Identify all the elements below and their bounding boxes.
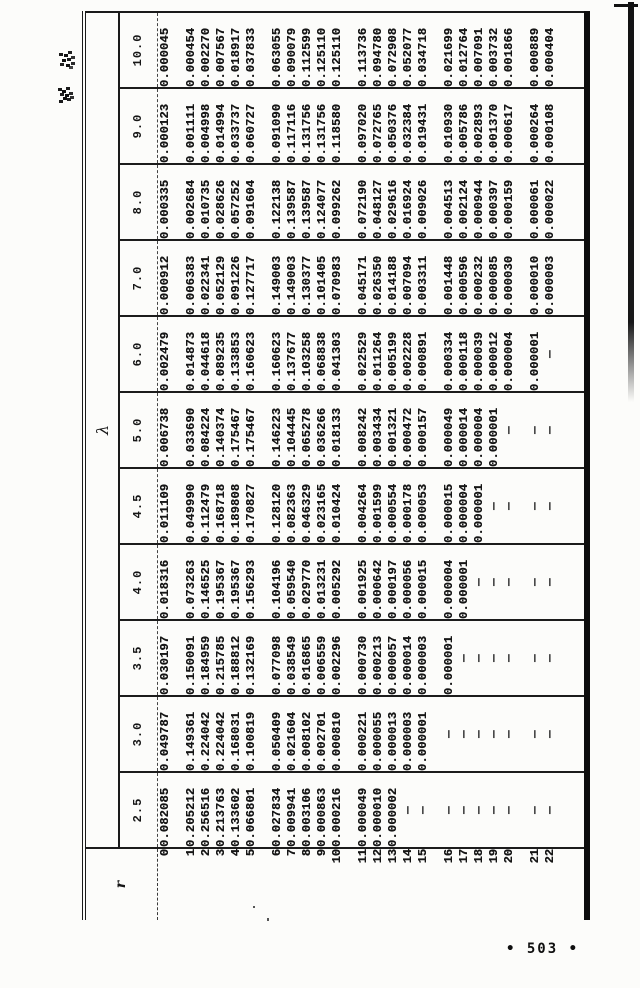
- cell-l2.5-r7: 0.009941: [284, 772, 299, 848]
- poisson-probability-table: rλ2.53.03.54.04.55.06.07.08.09.010.000.0…: [82, 11, 590, 920]
- cell-l3.5-r15: 0.000003: [415, 620, 430, 696]
- cell-l3.0-r10: 0.000810: [329, 696, 344, 772]
- cell-l6.0-r12: 0.011264: [370, 316, 385, 392]
- ink-smudge: [59, 53, 63, 56]
- spacer-cell: [258, 772, 269, 848]
- spacer-cell: [430, 620, 441, 696]
- cell-l10.0-r2: 0.002270: [198, 12, 213, 88]
- spacer-cell: [172, 316, 183, 392]
- cell-l2.5-r19: —: [486, 772, 501, 848]
- cell-l5.0-r5: 0.175467: [243, 392, 258, 468]
- lambda-value-header-3.0: 3.0: [119, 696, 157, 772]
- cell-l3.5-r22: —: [542, 620, 557, 696]
- cell-l9.0-r1: 0.001111: [183, 88, 198, 164]
- r-value-19: 19: [486, 848, 501, 920]
- spacer-cell: [516, 848, 527, 920]
- cell-l9.0-r4: 0.033737: [228, 88, 243, 164]
- cell-l9.0-r14: 0.032384: [400, 88, 415, 164]
- spacer-cell: [344, 392, 355, 468]
- spacer-cell: [557, 240, 587, 316]
- cell-l4.5-r17: 0.000004: [456, 468, 471, 544]
- cell-l7.0-r1: 0.006383: [183, 240, 198, 316]
- cell-l5.0-r20: —: [501, 392, 516, 468]
- spacer-cell: [172, 164, 183, 240]
- cell-l8.0-r2: 0.010735: [198, 164, 213, 240]
- group-spacer: [430, 12, 441, 920]
- r-value-16: 16: [441, 848, 456, 920]
- cell-l2.5-r15: —: [415, 772, 430, 848]
- cell-l2.5-r17: —: [456, 772, 471, 848]
- cell-l5.0-r1: 0.033690: [183, 392, 198, 468]
- table-row-r14: 14—0.0000030.0000140.0000560.0001780.000…: [400, 12, 415, 920]
- cell-l3.0-r6: 0.050409: [269, 696, 284, 772]
- cell-l6.0-r2: 0.044618: [198, 316, 213, 392]
- cell-l4.0-r21: —: [527, 544, 542, 620]
- cell-l4.0-r14: 0.000056: [400, 544, 415, 620]
- cell-l7.0-r21: 0.000010: [527, 240, 542, 316]
- cell-l9.0-r17: 0.005786: [456, 88, 471, 164]
- cell-l2.5-r1: 0.205212: [183, 772, 198, 848]
- cell-l10.0-r5: 0.037833: [243, 12, 258, 88]
- r-value-13: 13: [385, 848, 400, 920]
- spacer-cell: [516, 240, 527, 316]
- cell-l5.0-r10: 0.018133: [329, 392, 344, 468]
- cell-l3.0-r15: 0.000001: [415, 696, 430, 772]
- spacer-cell: [557, 772, 587, 848]
- group-spacer: [557, 12, 587, 920]
- cell-l7.0-r12: 0.026350: [370, 240, 385, 316]
- spacer-cell: [557, 620, 587, 696]
- r-value-2: 2: [198, 848, 213, 920]
- spacer-cell: [557, 544, 587, 620]
- cell-l8.0-r4: 0.057252: [228, 164, 243, 240]
- cell-l9.0-r11: 0.097020: [355, 88, 370, 164]
- r-value-4: 4: [228, 848, 243, 920]
- cell-l2.5-r8: 0.003106: [299, 772, 314, 848]
- cell-l3.0-r4: 0.168031: [228, 696, 243, 772]
- cell-l6.0-r17: 0.000118: [456, 316, 471, 392]
- cell-l5.0-r8: 0.065278: [299, 392, 314, 468]
- cell-l7.0-r19: 0.000085: [486, 240, 501, 316]
- spacer-cell: [430, 848, 441, 920]
- cell-l4.0-r20: —: [501, 544, 516, 620]
- spacer-cell: [430, 240, 441, 316]
- cell-l4.5-r0: 0.011109: [157, 468, 172, 544]
- cell-l4.5-r5: 0.170827: [243, 468, 258, 544]
- spacer-cell: [557, 848, 587, 920]
- spacer-cell: [172, 544, 183, 620]
- cell-l4.5-r18: 0.000001: [471, 468, 486, 544]
- cell-l4.5-r1: 0.049990: [183, 468, 198, 544]
- spacer-cell: [516, 620, 527, 696]
- cell-l7.0-r9: 0.101405: [314, 240, 329, 316]
- lambda-value-header-4.0: 4.0: [119, 544, 157, 620]
- r-value-3: 3: [213, 848, 228, 920]
- cell-l9.0-r22: 0.000108: [542, 88, 557, 164]
- cell-l10.0-r21: 0.000889: [527, 12, 542, 88]
- cell-l10.0-r16: 0.021699: [441, 12, 456, 88]
- cell-l6.0-r9: 0.068838: [314, 316, 329, 392]
- cell-l7.0-r13: 0.014188: [385, 240, 400, 316]
- cell-l4.5-r14: 0.000178: [400, 468, 415, 544]
- cell-l2.5-r18: —: [471, 772, 486, 848]
- spacer-cell: [258, 848, 269, 920]
- cell-l3.5-r16: 0.000001: [441, 620, 456, 696]
- scanned-document-page: rλ2.53.03.54.04.55.06.07.08.09.010.000.0…: [0, 0, 640, 988]
- r-value-10: 10: [329, 848, 344, 920]
- cell-l3.5-r14: 0.000014: [400, 620, 415, 696]
- cell-l8.0-r18: 0.000944: [471, 164, 486, 240]
- cell-l3.5-r1: 0.150091: [183, 620, 198, 696]
- r-value-14: 14: [400, 848, 415, 920]
- cell-l3.5-r4: 0.188812: [228, 620, 243, 696]
- r-value-12: 12: [370, 848, 385, 920]
- cell-l5.0-r18: 0.000004: [471, 392, 486, 468]
- spacer-cell: [557, 316, 587, 392]
- spacer-cell: [258, 164, 269, 240]
- spacer-cell: [557, 88, 587, 164]
- cell-l9.0-r18: 0.002893: [471, 88, 486, 164]
- table-row-r0: 00.0820850.0497870.0301970.0183160.01110…: [157, 12, 172, 920]
- table-row-r10: 100.0002160.0008100.0022960.0052920.0104…: [329, 12, 344, 920]
- r-value-17: 17: [456, 848, 471, 920]
- cell-l8.0-r15: 0.009026: [415, 164, 430, 240]
- cell-l10.0-r14: 0.052077: [400, 12, 415, 88]
- cell-l10.0-r12: 0.094780: [370, 12, 385, 88]
- cell-l5.0-r14: 0.000472: [400, 392, 415, 468]
- spacer-cell: [557, 164, 587, 240]
- cell-l5.0-r6: 0.146223: [269, 392, 284, 468]
- cell-l9.0-r20: 0.000617: [501, 88, 516, 164]
- cell-l8.0-r8: 0.139587: [299, 164, 314, 240]
- rotated-table-area: rλ2.53.03.54.04.55.06.07.08.09.010.000.0…: [82, 12, 585, 920]
- cell-l3.5-r6: 0.077098: [269, 620, 284, 696]
- cell-l9.0-r9: 0.131756: [314, 88, 329, 164]
- cell-l5.0-r9: 0.036266: [314, 392, 329, 468]
- cell-l7.0-r17: 0.000596: [456, 240, 471, 316]
- cell-l10.0-r20: 0.001866: [501, 12, 516, 88]
- cell-l2.5-r20: —: [501, 772, 516, 848]
- cell-l5.0-r21: —: [527, 392, 542, 468]
- r-value-20: 20: [501, 848, 516, 920]
- cell-l8.0-r0: 0.000335: [157, 164, 172, 240]
- spacer-cell: [258, 620, 269, 696]
- cell-l8.0-r12: 0.048127: [370, 164, 385, 240]
- cell-l7.0-r5: 0.127717: [243, 240, 258, 316]
- cell-l2.5-r11: 0.000049: [355, 772, 370, 848]
- cell-l9.0-r5: 0.060727: [243, 88, 258, 164]
- cell-l7.0-r6: 0.149003: [269, 240, 284, 316]
- cell-l7.0-r4: 0.091226: [228, 240, 243, 316]
- r-value-15: 15: [415, 848, 430, 920]
- cell-l6.0-r14: 0.002228: [400, 316, 415, 392]
- cell-l8.0-r21: 0.000061: [527, 164, 542, 240]
- cell-l4.5-r7: 0.082363: [284, 468, 299, 544]
- cell-l8.0-r1: 0.002684: [183, 164, 198, 240]
- cell-l10.0-r4: 0.018917: [228, 12, 243, 88]
- cell-l10.0-r11: 0.113736: [355, 12, 370, 88]
- cell-l3.5-r18: —: [471, 620, 486, 696]
- spacer-cell: [172, 88, 183, 164]
- cell-l3.0-r16: —: [441, 696, 456, 772]
- cell-l3.5-r13: 0.000057: [385, 620, 400, 696]
- lambda-value-header-9.0: 9.0: [119, 88, 157, 164]
- cell-l3.0-r11: 0.000221: [355, 696, 370, 772]
- cell-l3.0-r20: —: [501, 696, 516, 772]
- cell-l8.0-r5: 0.091604: [243, 164, 258, 240]
- r-value-11: 11: [355, 848, 370, 920]
- cell-l9.0-r21: 0.000264: [527, 88, 542, 164]
- cell-l9.0-r7: 0.117116: [284, 88, 299, 164]
- cell-l4.0-r8: 0.029770: [299, 544, 314, 620]
- spacer-cell: [172, 772, 183, 848]
- table-row-r20: 20——————0.0000040.0000300.0001590.000617…: [501, 12, 516, 920]
- cell-l4.0-r18: —: [471, 544, 486, 620]
- cell-l3.0-r19: —: [486, 696, 501, 772]
- cell-l6.0-r4: 0.133853: [228, 316, 243, 392]
- spacer-cell: [516, 12, 527, 88]
- cell-l6.0-r10: 0.041303: [329, 316, 344, 392]
- cell-l10.0-r9: 0.125110: [314, 12, 329, 88]
- spacer-cell: [430, 392, 441, 468]
- cell-l5.0-r0: 0.006738: [157, 392, 172, 468]
- cell-l8.0-r9: 0.124077: [314, 164, 329, 240]
- table-row-r13: 130.0000020.0000130.0000570.0001970.0005…: [385, 12, 400, 920]
- cell-l6.0-r11: 0.022529: [355, 316, 370, 392]
- cell-l4.5-r12: 0.001599: [370, 468, 385, 544]
- spacer-cell: [172, 392, 183, 468]
- spacer-cell: [516, 316, 527, 392]
- cell-l5.0-r22: —: [542, 392, 557, 468]
- cell-l2.5-r16: —: [441, 772, 456, 848]
- cell-l8.0-r6: 0.122138: [269, 164, 284, 240]
- spacer-cell: [516, 544, 527, 620]
- cell-l3.5-r11: 0.000730: [355, 620, 370, 696]
- cell-l9.0-r3: 0.014994: [213, 88, 228, 164]
- scan-speckle: [253, 906, 255, 908]
- spacer-cell: [516, 772, 527, 848]
- spacer-cell: [258, 12, 269, 88]
- cell-l3.0-r7: 0.021604: [284, 696, 299, 772]
- spacer-cell: [344, 468, 355, 544]
- cell-l5.0-r17: 0.000014: [456, 392, 471, 468]
- cell-l10.0-r7: 0.090079: [284, 12, 299, 88]
- cell-l7.0-r18: 0.000232: [471, 240, 486, 316]
- spacer-cell: [258, 240, 269, 316]
- table-row-r12: 120.0000100.0000550.0002130.0006420.0015…: [370, 12, 385, 920]
- cell-l3.0-r1: 0.149361: [183, 696, 198, 772]
- spacer-cell: [344, 544, 355, 620]
- cell-l3.0-r21: —: [527, 696, 542, 772]
- cell-l8.0-r11: 0.072190: [355, 164, 370, 240]
- cell-l3.0-r3: 0.224042: [213, 696, 228, 772]
- lambda-value-header-4.5: 4.5: [119, 468, 157, 544]
- cell-l2.5-r22: —: [542, 772, 557, 848]
- cell-l4.0-r10: 0.005292: [329, 544, 344, 620]
- r-value-5: 5: [243, 848, 258, 920]
- spacer-cell: [430, 316, 441, 392]
- r-value-21: 21: [527, 848, 542, 920]
- cell-l5.0-r16: 0.000049: [441, 392, 456, 468]
- table-row-r8: 80.0031060.0081020.0168650.0297700.04632…: [299, 12, 314, 920]
- cell-l8.0-r16: 0.004513: [441, 164, 456, 240]
- cell-l6.0-r5: 0.160623: [243, 316, 258, 392]
- spacer-cell: [516, 392, 527, 468]
- cell-l10.0-r18: 0.007091: [471, 12, 486, 88]
- table-row-r21: 21——————0.0000010.0000100.0000610.000264…: [527, 12, 542, 920]
- cell-l4.0-r19: —: [486, 544, 501, 620]
- cell-l3.0-r9: 0.002701: [314, 696, 329, 772]
- spacer-cell: [172, 696, 183, 772]
- cell-l6.0-r22: —: [542, 316, 557, 392]
- cell-l4.5-r13: 0.000554: [385, 468, 400, 544]
- cell-l5.0-r15: 0.000157: [415, 392, 430, 468]
- cell-l3.0-r5: 0.100819: [243, 696, 258, 772]
- r-value-1: 1: [183, 848, 198, 920]
- cell-l6.0-r6: 0.160623: [269, 316, 284, 392]
- cell-l4.0-r3: 0.195367: [213, 544, 228, 620]
- cell-l4.0-r15: 0.000015: [415, 544, 430, 620]
- group-spacer: [344, 12, 355, 920]
- cell-l7.0-r14: 0.007094: [400, 240, 415, 316]
- cell-l6.0-r3: 0.089235: [213, 316, 228, 392]
- spacer-cell: [430, 12, 441, 88]
- table-row-r1: 10.2052120.1493610.1500910.0732630.04999…: [183, 12, 198, 920]
- cell-l4.0-r5: 0.156293: [243, 544, 258, 620]
- table-row-r22: 22———————0.0000030.0000220.0001080.00040…: [542, 12, 557, 920]
- cell-l6.0-r1: 0.014873: [183, 316, 198, 392]
- r-value-9: 9: [314, 848, 329, 920]
- r-value-8: 8: [299, 848, 314, 920]
- cell-l3.0-r8: 0.008102: [299, 696, 314, 772]
- cell-l3.5-r10: 0.002296: [329, 620, 344, 696]
- table-row-r18: 18————0.0000010.0000040.0000390.0002320.…: [471, 12, 486, 920]
- cell-l6.0-r7: 0.137677: [284, 316, 299, 392]
- cell-l4.0-r6: 0.104196: [269, 544, 284, 620]
- cell-l3.5-r0: 0.030197: [157, 620, 172, 696]
- cell-l2.5-r13: 0.000002: [385, 772, 400, 848]
- table-row-r19: 19—————0.0000010.0000120.0000850.0003970…: [486, 12, 501, 920]
- cell-l5.0-r3: 0.140374: [213, 392, 228, 468]
- table-row-r15: 15—0.0000010.0000030.0000150.0000530.000…: [415, 12, 430, 920]
- spacer-cell: [344, 164, 355, 240]
- cell-l2.5-r6: 0.027834: [269, 772, 284, 848]
- spacer-cell: [344, 88, 355, 164]
- cell-l4.5-r8: 0.046329: [299, 468, 314, 544]
- cell-l2.5-r9: 0.000863: [314, 772, 329, 848]
- spacer-cell: [557, 392, 587, 468]
- cell-l10.0-r1: 0.000454: [183, 12, 198, 88]
- cell-l4.0-r13: 0.000197: [385, 544, 400, 620]
- cell-l2.5-r2: 0.256516: [198, 772, 213, 848]
- cell-l9.0-r2: 0.004998: [198, 88, 213, 164]
- table-row-r2: 20.2565160.2240420.1849590.1465250.11247…: [198, 12, 213, 920]
- cell-l10.0-r3: 0.007567: [213, 12, 228, 88]
- cell-l6.0-r19: 0.000012: [486, 316, 501, 392]
- cell-l9.0-r10: 0.118580: [329, 88, 344, 164]
- cell-l3.5-r17: —: [456, 620, 471, 696]
- spacer-cell: [258, 392, 269, 468]
- cell-l9.0-r12: 0.072765: [370, 88, 385, 164]
- cell-l5.0-r12: 0.003434: [370, 392, 385, 468]
- cell-l8.0-r7: 0.139587: [284, 164, 299, 240]
- lambda-value-header-3.5: 3.5: [119, 620, 157, 696]
- cell-l6.0-r18: 0.000039: [471, 316, 486, 392]
- cell-l2.5-r0: 0.082085: [157, 772, 172, 848]
- cell-l8.0-r19: 0.000397: [486, 164, 501, 240]
- cell-l8.0-r17: 0.002124: [456, 164, 471, 240]
- spacer-cell: [172, 468, 183, 544]
- lambda-header: λ: [84, 12, 119, 848]
- cell-l4.0-r17: 0.000001: [456, 544, 471, 620]
- spacer-cell: [344, 620, 355, 696]
- spacer-cell: [516, 164, 527, 240]
- spacer-cell: [430, 696, 441, 772]
- cell-l9.0-r6: 0.091090: [269, 88, 284, 164]
- cell-l2.5-r14: —: [400, 772, 415, 848]
- spacer-cell: [344, 848, 355, 920]
- r-value-6: 6: [269, 848, 284, 920]
- cell-l6.0-r20: 0.000004: [501, 316, 516, 392]
- cell-l10.0-r0: 0.000045: [157, 12, 172, 88]
- cell-l4.5-r21: —: [527, 468, 542, 544]
- table-row-r7: 70.0099410.0216040.0385490.0595400.08236…: [284, 12, 299, 920]
- cell-l6.0-r21: 0.000001: [527, 316, 542, 392]
- cell-l8.0-r20: 0.000159: [501, 164, 516, 240]
- spacer-cell: [516, 88, 527, 164]
- cell-l10.0-r13: 0.072908: [385, 12, 400, 88]
- r-column-header: r: [84, 848, 157, 920]
- cell-l3.0-r17: —: [456, 696, 471, 772]
- r-value-18: 18: [471, 848, 486, 920]
- cell-l7.0-r7: 0.149003: [284, 240, 299, 316]
- cell-l5.0-r11: 0.008242: [355, 392, 370, 468]
- lambda-value-header-8.0: 8.0: [119, 164, 157, 240]
- cell-l3.5-r5: 0.132169: [243, 620, 258, 696]
- spacer-cell: [258, 544, 269, 620]
- spacer-cell: [430, 544, 441, 620]
- cell-l6.0-r0: 0.002479: [157, 316, 172, 392]
- spacer-cell: [258, 88, 269, 164]
- table-row-r5: 50.0668010.1008190.1321690.1562930.17082…: [243, 12, 258, 920]
- cell-l4.0-r0: 0.018316: [157, 544, 172, 620]
- spacer-cell: [516, 696, 527, 772]
- r-value-0: 0: [157, 848, 172, 920]
- cell-l4.0-r2: 0.146525: [198, 544, 213, 620]
- cell-l3.0-r22: —: [542, 696, 557, 772]
- cell-l7.0-r8: 0.130377: [299, 240, 314, 316]
- cell-l7.0-r16: 0.001448: [441, 240, 456, 316]
- page-number: • 503 •: [506, 941, 579, 957]
- cell-l3.5-r21: —: [527, 620, 542, 696]
- spacer-cell: [344, 240, 355, 316]
- spacer-cell: [430, 468, 441, 544]
- table-row-r6: 60.0278340.0504090.0770980.1041960.12812…: [269, 12, 284, 920]
- cell-l3.5-r12: 0.000213: [370, 620, 385, 696]
- spacer-cell: [344, 12, 355, 88]
- cell-l8.0-r13: 0.029616: [385, 164, 400, 240]
- cell-l7.0-r22: 0.000003: [542, 240, 557, 316]
- cell-l3.0-r18: —: [471, 696, 486, 772]
- cell-l3.0-r12: 0.000055: [370, 696, 385, 772]
- cell-l3.0-r0: 0.049787: [157, 696, 172, 772]
- spacer-cell: [430, 772, 441, 848]
- cell-l4.0-r1: 0.073263: [183, 544, 198, 620]
- table-row-r9: 90.0008630.0027010.0065590.0132310.02316…: [314, 12, 329, 920]
- cell-l4.5-r6: 0.128120: [269, 468, 284, 544]
- cell-l8.0-r14: 0.016924: [400, 164, 415, 240]
- cell-l4.0-r7: 0.059540: [284, 544, 299, 620]
